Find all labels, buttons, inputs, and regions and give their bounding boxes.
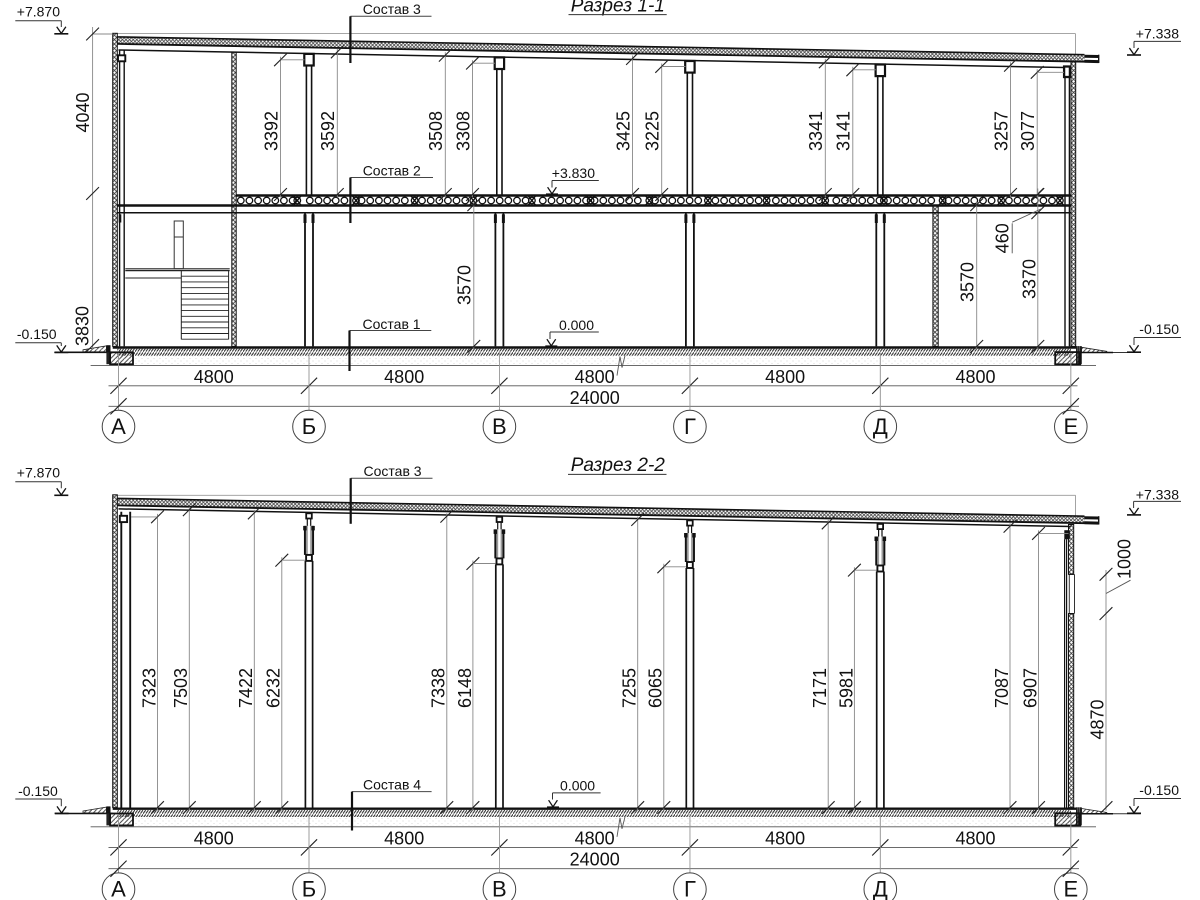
svg-text:3830: 3830 [73, 306, 93, 346]
svg-text:4800: 4800 [955, 367, 995, 387]
svg-text:Б: Б [302, 877, 316, 900]
svg-text:Г: Г [684, 414, 696, 439]
svg-text:3308: 3308 [453, 111, 473, 151]
svg-text:7087: 7087 [992, 668, 1012, 708]
svg-text:Е: Е [1063, 414, 1078, 439]
svg-text:-0.150: -0.150 [1139, 782, 1179, 798]
svg-text:Разрез 1-1: Разрез 1-1 [571, 0, 665, 16]
svg-text:3392: 3392 [261, 111, 281, 151]
svg-text:Состав 3: Состав 3 [364, 463, 422, 479]
svg-text:4800: 4800 [575, 828, 615, 848]
svg-text:6232: 6232 [264, 668, 284, 708]
svg-text:Состав 2: Состав 2 [363, 162, 421, 178]
svg-text:0.000: 0.000 [560, 778, 595, 794]
svg-text:А: А [111, 414, 126, 439]
svg-text:4800: 4800 [194, 367, 234, 387]
svg-text:3225: 3225 [643, 111, 663, 151]
svg-text:Д: Д [873, 414, 888, 439]
svg-text:4800: 4800 [575, 367, 615, 387]
svg-text:1000: 1000 [1114, 539, 1134, 579]
svg-text:3592: 3592 [318, 111, 338, 151]
svg-text:24000: 24000 [570, 849, 620, 869]
svg-text:7338: 7338 [429, 668, 449, 708]
svg-text:3341: 3341 [806, 111, 826, 151]
svg-text:4800: 4800 [765, 828, 805, 848]
svg-text:7255: 7255 [620, 668, 640, 708]
svg-text:6907: 6907 [1020, 668, 1040, 708]
svg-text:Состав 3: Состав 3 [363, 1, 421, 17]
svg-text:3257: 3257 [991, 111, 1011, 151]
svg-text:3077: 3077 [1018, 111, 1038, 151]
svg-text:6148: 6148 [455, 668, 475, 708]
svg-text:3570: 3570 [455, 265, 475, 305]
svg-text:3370: 3370 [1020, 259, 1040, 299]
svg-text:0.000: 0.000 [559, 317, 594, 333]
svg-text:Д: Д [873, 877, 888, 900]
svg-text:Состав 4: Состав 4 [363, 776, 421, 792]
svg-text:Состав 1: Состав 1 [363, 316, 421, 332]
svg-text:В: В [492, 877, 507, 900]
svg-text:3141: 3141 [834, 111, 854, 151]
svg-text:-0.150: -0.150 [18, 783, 58, 799]
svg-text:+7.870: +7.870 [17, 4, 60, 20]
svg-text:24000: 24000 [570, 388, 620, 408]
svg-text:7503: 7503 [171, 668, 191, 708]
svg-text:7422: 7422 [236, 668, 256, 708]
svg-text:Е: Е [1063, 877, 1078, 900]
svg-text:-0.150: -0.150 [1139, 321, 1179, 337]
svg-text:+7.338: +7.338 [1136, 487, 1179, 503]
svg-text:4870: 4870 [1088, 699, 1108, 739]
svg-text:4800: 4800 [765, 367, 805, 387]
svg-text:3425: 3425 [613, 111, 633, 151]
svg-text:Разрез 2-2: Разрез 2-2 [571, 455, 666, 476]
svg-text:-0.150: -0.150 [17, 326, 57, 342]
svg-text:Б: Б [302, 414, 316, 439]
svg-text:3570: 3570 [958, 262, 978, 302]
svg-text:+7.338: +7.338 [1136, 26, 1179, 42]
svg-text:4800: 4800 [384, 367, 424, 387]
svg-text:460: 460 [992, 223, 1012, 253]
svg-text:+3.830: +3.830 [552, 165, 595, 181]
svg-text:4040: 4040 [73, 92, 93, 132]
svg-text:+7.870: +7.870 [17, 465, 60, 481]
svg-text:В: В [492, 414, 507, 439]
svg-text:Г: Г [684, 877, 696, 900]
svg-text:3508: 3508 [426, 111, 446, 151]
svg-text:7323: 7323 [139, 668, 159, 708]
svg-text:6065: 6065 [646, 668, 666, 708]
svg-text:4800: 4800 [955, 828, 995, 848]
svg-text:А: А [111, 877, 126, 900]
svg-text:4800: 4800 [194, 828, 234, 848]
svg-text:5981: 5981 [836, 668, 856, 708]
svg-text:7171: 7171 [810, 668, 830, 708]
svg-text:4800: 4800 [384, 828, 424, 848]
